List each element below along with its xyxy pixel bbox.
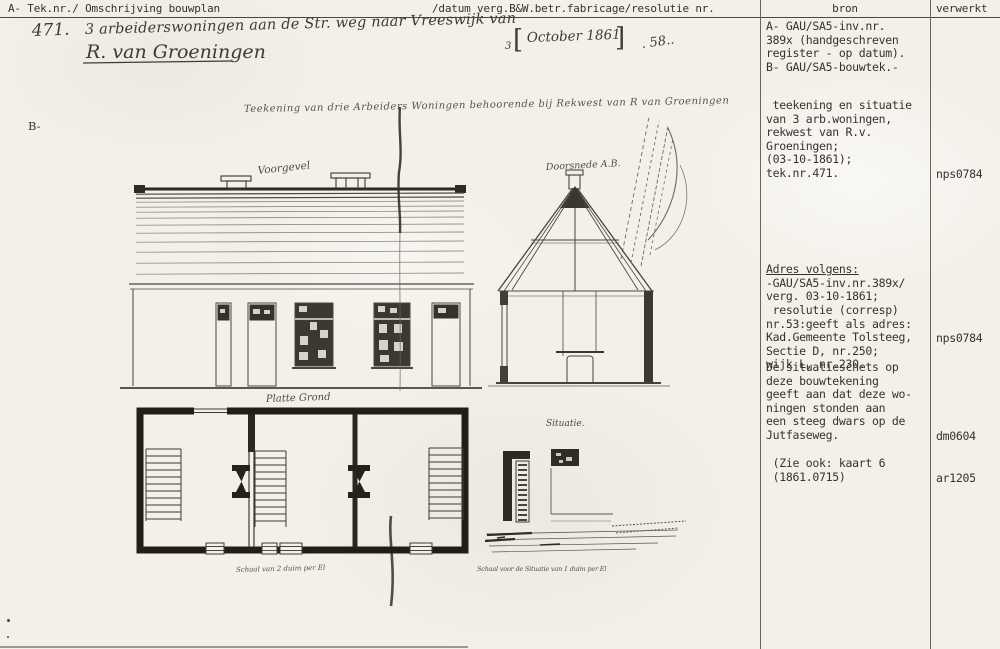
plan-outer-walls — [140, 411, 465, 550]
plan-fireplace-1 — [232, 465, 250, 498]
plan-fireplace-2 — [348, 465, 370, 498]
handwritten-approval-annotation — [621, 117, 687, 266]
situation-label: Situatie. — [546, 419, 585, 429]
registry-trailing-number: . 58.. — [640, 33, 675, 52]
plan-description: 3 arbeiderswoningen aan de Str. weg naar… — [85, 11, 517, 38]
detail-line — [136, 241, 464, 242]
date-bracket-left: [ — [513, 25, 523, 55]
situation-building — [503, 459, 512, 521]
handwritten-registry-entry: 471. 3 arbeiderswoningen aan de Str. weg… — [30, 11, 675, 63]
chimney-left — [221, 176, 251, 189]
plan-opening — [206, 543, 224, 554]
section-wall-right — [644, 291, 653, 383]
chimney-right — [331, 173, 370, 190]
staircase-right — [429, 448, 463, 520]
situation-scale-label: Schaal voor de Situatie van 1 duim per E… — [477, 565, 606, 573]
floor-plan: Platte Grond — [140, 392, 465, 574]
rafter-left — [498, 188, 573, 291]
facade-door-2 — [248, 303, 276, 386]
rafter-right — [577, 188, 652, 291]
plan-number: 471. — [30, 20, 70, 41]
cross-section: Doorsnede A.B. — [488, 158, 670, 386]
detail-line — [136, 262, 464, 263]
facade-window-1 — [292, 303, 336, 368]
roof-corner-block — [455, 185, 466, 193]
wall-block — [500, 366, 508, 383]
plan-label: Platte Grond — [265, 392, 331, 405]
situation-sketch: Situatie. — [477, 419, 686, 573]
detail-line — [136, 273, 464, 274]
truss-brace-right — [584, 204, 638, 290]
plan-top-opening — [194, 405, 227, 417]
roof-corner-block — [134, 185, 145, 193]
truss-brace-left — [512, 204, 566, 290]
plan-opening — [280, 543, 302, 554]
detail-line — [136, 211, 464, 212]
signature-flourish — [648, 128, 677, 240]
wall-block — [500, 291, 508, 305]
applicant-name: R. van Groeningen — [85, 41, 266, 63]
signature-flourish — [655, 165, 687, 250]
staircase-left — [146, 449, 181, 521]
plan-opening — [410, 543, 432, 554]
fireplace — [567, 356, 593, 382]
facade-label: Voorgevel — [257, 160, 311, 177]
detail-line — [136, 224, 464, 225]
roof-course-lines — [136, 193, 464, 274]
date-bracket-right: ] — [615, 23, 625, 53]
margin-label-b: B- — [28, 119, 41, 133]
drawing-title: Teekening van drie Arbeiders Woningen be… — [244, 96, 730, 115]
situation-building — [551, 449, 579, 466]
detail-line — [136, 201, 464, 202]
staircase-middle — [255, 451, 286, 527]
situation-building — [503, 451, 530, 459]
party-wall-1-solid — [248, 414, 255, 452]
plan-opening — [262, 543, 277, 554]
detail-line — [136, 217, 464, 218]
date-prefix: 3 — [505, 41, 511, 52]
detail-line — [136, 197, 464, 198]
facade-elevation: Voorgevel — [120, 160, 482, 388]
situation-hatch-lines — [518, 465, 527, 520]
scanned-bouwplan-card: A- Tek.nr./ Omschrijving bouwplan /datum… — [0, 0, 1000, 649]
detail-line — [136, 251, 464, 252]
date-text: October 1861 — [527, 27, 621, 46]
facade-window-2 — [371, 303, 413, 368]
plan-scale-label: Schaal van 2 duim per El — [236, 564, 325, 574]
facade-door-1 — [216, 303, 231, 386]
detail-line — [136, 232, 464, 233]
architectural-drawing: 471. 3 arbeiderswoningen aan de Str. weg… — [0, 0, 1000, 649]
facade-door-3 — [432, 303, 460, 386]
detail-line — [136, 206, 464, 207]
situation-road-lines — [485, 530, 678, 552]
section-apex — [560, 186, 590, 208]
detail-line — [136, 193, 464, 194]
